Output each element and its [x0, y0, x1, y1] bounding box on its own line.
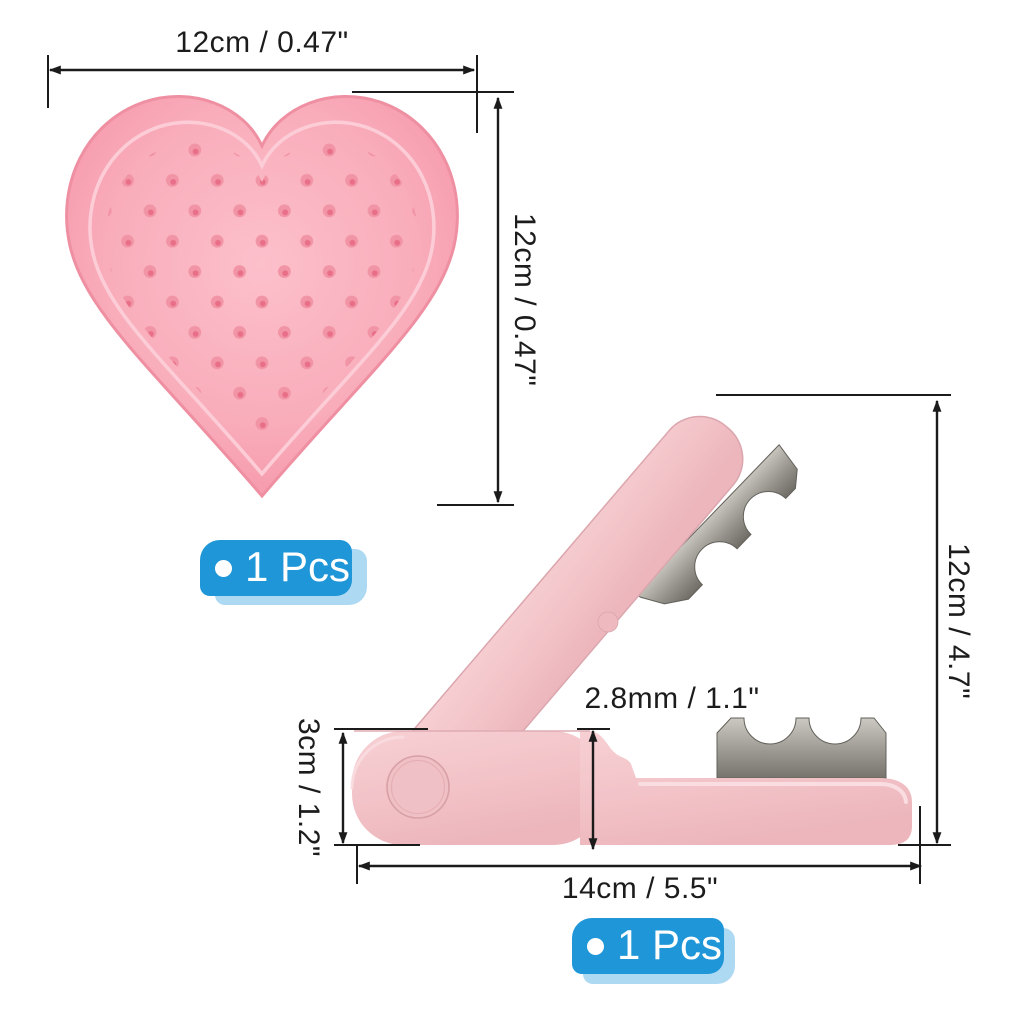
heart-height-label: 12cm / 0.47" — [508, 95, 541, 505]
pivot-button — [387, 756, 449, 818]
trimmer-length-label: 14cm / 5.5" — [460, 872, 820, 905]
qty-text: 1 Pcs — [245, 543, 350, 591]
bullet-dot — [215, 560, 232, 577]
bullet-dot — [587, 938, 604, 955]
product-dimension-diagram: { "heart_pad": { "badge_label": "1 Pcs",… — [0, 0, 1024, 1024]
badge-front: 1 Pcs — [200, 540, 352, 596]
trimmer-image — [340, 385, 940, 855]
qty-badge-trimmer: 1 Pcs — [572, 918, 762, 998]
heart-width-label: 12cm / 0.47" — [62, 26, 462, 59]
trimmer-height-label: 12cm / 4.7" — [942, 398, 975, 845]
qty-badge-heart: 1 Pcs — [200, 540, 390, 620]
badge-front: 1 Pcs — [572, 918, 724, 974]
trimmer-side-label: 3cm / 1.2" — [292, 710, 325, 865]
arm-step-bump — [598, 612, 618, 632]
trimmer-gap-label: 2.8mm / 1.1" — [512, 682, 832, 715]
lower-blade — [717, 718, 886, 778]
qty-text: 1 Pcs — [617, 921, 722, 969]
